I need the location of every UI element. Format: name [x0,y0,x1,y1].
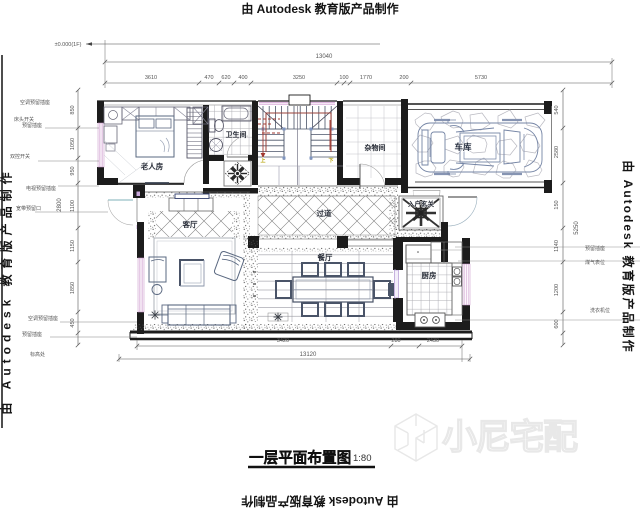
svg-text:预留插座: 预留插座 [22,122,42,129]
svg-text:100: 100 [339,75,348,81]
svg-text:煤气表位: 煤气表位 [585,259,605,266]
svg-text:1850: 1850 [70,282,76,294]
svg-text:空调预留插座: 空调预留插座 [28,315,58,322]
svg-text:预留插座: 预留插座 [585,245,605,252]
svg-text:1150: 1150 [70,240,76,252]
svg-text:±0.000(1F): ±0.000(1F) [55,42,82,48]
svg-text:电视预留插座: 电视预留插座 [26,185,56,192]
svg-text:2800: 2800 [57,198,63,212]
svg-text:200: 200 [399,75,408,81]
svg-text:620: 620 [221,75,230,81]
svg-text:餐厅: 餐厅 [317,252,333,262]
svg-text:厨房: 厨房 [422,270,437,280]
svg-text:过道: 过道 [317,208,332,218]
svg-text:1770: 1770 [360,75,372,81]
svg-text:3420: 3420 [277,338,289,344]
svg-text:老人房: 老人房 [140,161,164,171]
svg-text:车库: 车库 [454,142,472,152]
svg-text:2580: 2580 [554,146,560,158]
svg-text:280: 280 [391,338,400,344]
svg-text:由 Autodesk 教育版产品制作: 由 Autodesk 教育版产品制作 [241,494,398,509]
svg-text:客厅: 客厅 [182,219,198,229]
svg-text:床头开关: 床头开关 [14,116,34,123]
svg-text:1100: 1100 [70,200,76,212]
svg-text:850: 850 [70,105,76,114]
svg-text:5730: 5730 [475,75,487,81]
svg-text:上: 上 [260,157,265,164]
svg-text:3610: 3610 [145,75,157,81]
svg-text:空调预留插座: 空调预留插座 [20,99,50,106]
svg-text:卫生间: 卫生间 [226,130,247,139]
svg-text:1:80: 1:80 [353,453,372,464]
svg-text:一层平面布置图: 一层平面布置图 [249,449,351,467]
svg-text:5250: 5250 [574,221,580,235]
svg-text:标高处: 标高处 [30,351,45,358]
svg-text:入户玄关: 入户玄关 [407,199,435,208]
svg-text:双控开关: 双控开关 [10,153,30,160]
svg-text:400: 400 [238,75,247,81]
svg-text:宽带预留口: 宽带预留口 [16,205,41,212]
svg-text:600: 600 [554,319,560,328]
svg-text:1050: 1050 [70,138,76,150]
svg-text:由 Autodesk 教育版产品制作: 由 Autodesk 教育版产品制作 [621,160,636,353]
svg-text:2430: 2430 [427,338,439,344]
svg-text:洗衣机位: 洗衣机位 [590,307,610,314]
svg-text:3250: 3250 [293,75,305,81]
svg-text:杂物间: 杂物间 [365,143,386,152]
svg-text:13040: 13040 [316,54,333,60]
svg-text:150: 150 [554,200,560,209]
svg-text:1140: 1140 [554,240,560,252]
svg-text:450: 450 [70,318,76,327]
svg-text:470: 470 [204,75,213,81]
svg-text:1200: 1200 [554,284,560,296]
svg-text:由 Autodesk 教育版产品制作: 由 Autodesk 教育版产品制作 [241,1,398,16]
svg-text:540: 540 [554,105,560,114]
svg-text:预留插座: 预留插座 [22,331,42,338]
svg-text:小尼宅配: 小尼宅配 [442,417,578,457]
svg-text:13120: 13120 [300,352,317,358]
svg-text:下: 下 [328,157,333,164]
svg-text:950: 950 [70,166,76,175]
